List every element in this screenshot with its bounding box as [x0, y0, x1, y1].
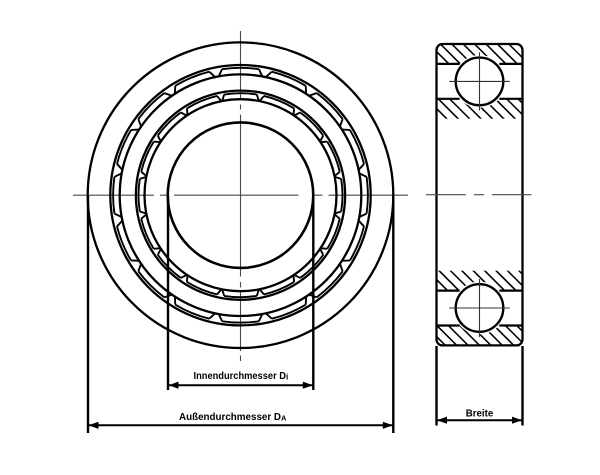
svg-text:Außendurchmesser DA: Außendurchmesser DA [179, 412, 287, 423]
svg-text:Breite: Breite [466, 408, 494, 419]
svg-text:Innendurchmesser Di: Innendurchmesser Di [194, 371, 289, 382]
